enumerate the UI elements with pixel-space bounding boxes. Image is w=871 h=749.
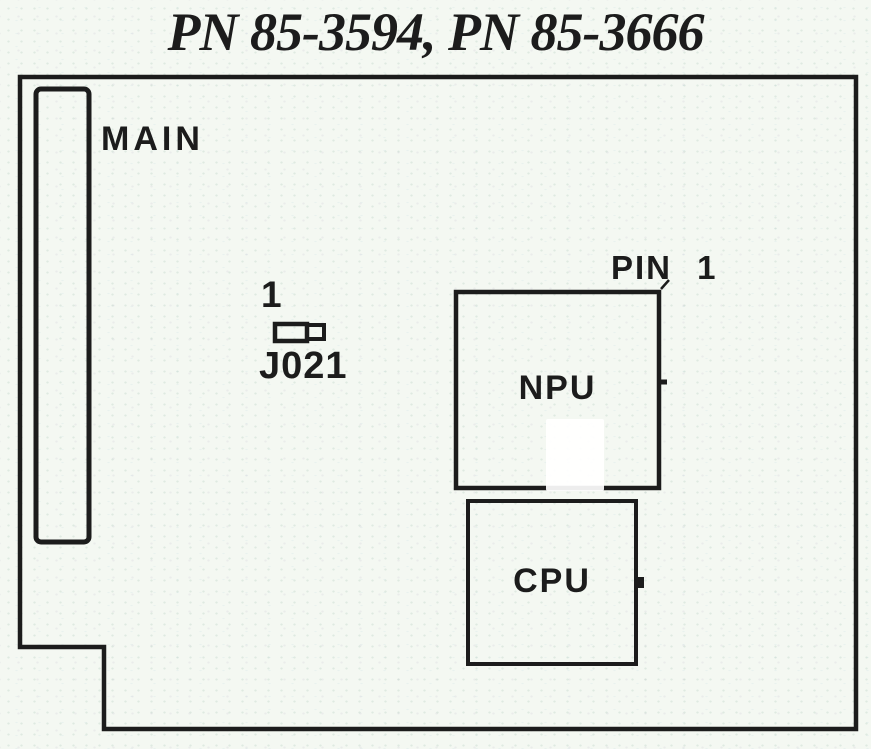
cpu-right-notch	[636, 577, 644, 588]
jumper-j021-right-cell	[307, 325, 324, 339]
scan-white-patch	[546, 419, 604, 491]
board-artwork	[0, 0, 871, 749]
jumper-name-label: J021	[259, 347, 348, 385]
cpu-chip-label: CPU	[467, 564, 637, 598]
board-outline	[20, 77, 856, 729]
main-connector	[36, 89, 89, 542]
main-connector-label: MAIN	[101, 122, 204, 156]
npu-chip-label: NPU	[455, 371, 660, 405]
jumper-pin1-label: 1	[261, 276, 282, 313]
npu-pin1-label: PIN 1	[611, 251, 718, 284]
scanned-board-diagram: PN 85-3594, PN 85-3666 MAIN PIN 1 1 J021…	[0, 0, 871, 749]
jumper-j021-left-cell	[275, 324, 307, 341]
